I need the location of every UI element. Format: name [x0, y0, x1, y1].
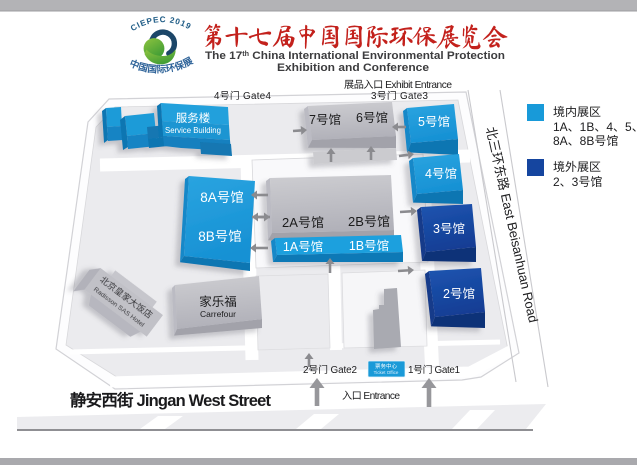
svg-text:1B号馆: 1B号馆	[349, 235, 389, 254]
svg-text:4号馆: 4号馆	[425, 163, 457, 182]
svg-text:入口 Entrance: 入口 Entrance	[342, 387, 400, 402]
svg-text:第十七届中国国际环保展览会: 第十七届中国国际环保展览会	[200, 23, 508, 50]
svg-text:6号馆: 6号馆	[356, 107, 388, 126]
svg-text:家乐福: 家乐福	[199, 291, 237, 310]
svg-text:3号门 Gate3: 3号门 Gate3	[371, 88, 429, 102]
svg-text:5号馆: 5号馆	[418, 111, 450, 130]
svg-text:票务中心: 票务中心	[375, 362, 398, 370]
svg-text:2、3号馆: 2、3号馆	[553, 173, 602, 190]
svg-text:Ticket Office: Ticket Office	[374, 370, 399, 375]
svg-text:服务楼: 服务楼	[176, 110, 211, 126]
svg-text:2A号馆: 2A号馆	[282, 212, 324, 231]
svg-text:8A、8B号馆: 8A、8B号馆	[553, 132, 618, 149]
svg-text:2号门 Gate2: 2号门 Gate2	[303, 362, 357, 376]
svg-text:4号门 Gate4: 4号门 Gate4	[214, 88, 272, 102]
svg-text:2号馆: 2号馆	[443, 283, 475, 302]
svg-text:8B号馆: 8B号馆	[198, 225, 242, 245]
svg-text:Exhibition and Conference: Exhibition and Conference	[277, 62, 429, 74]
svg-text:1号门 Gate1: 1号门 Gate1	[408, 362, 461, 376]
svg-text:8A号馆: 8A号馆	[200, 186, 244, 206]
svg-text:2B号馆: 2B号馆	[348, 211, 390, 230]
svg-text:Service Building: Service Building	[165, 126, 221, 135]
svg-text:静安西街 Jingan West Street: 静安西街 Jingan West Street	[70, 387, 272, 411]
svg-text:Carrefour: Carrefour	[200, 309, 236, 319]
svg-text:7号馆: 7号馆	[309, 109, 341, 128]
svg-text:3号馆: 3号馆	[433, 218, 465, 237]
svg-text:The 17th China International E: The 17th China International Environment…	[205, 50, 505, 62]
svg-text:1A号馆: 1A号馆	[283, 236, 323, 255]
